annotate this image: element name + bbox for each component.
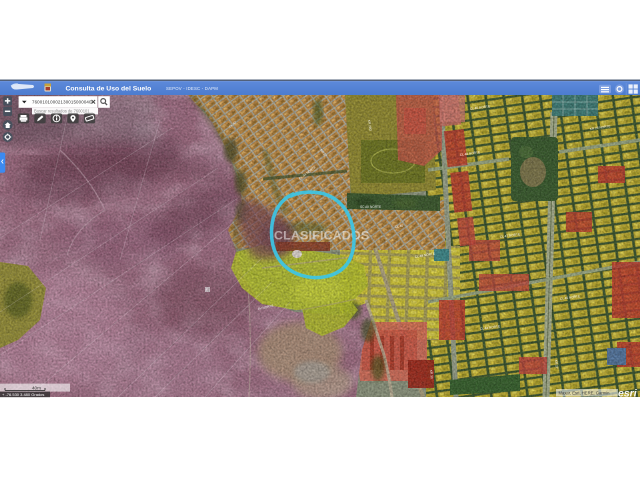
svg-text:SEPOV - IDESC - DAPM: SEPOV - IDESC - DAPM	[166, 86, 218, 91]
svg-text:76001010002130015000040: 76001010002130015000040	[32, 99, 92, 104]
svg-text:Maxar, Esri, HERE, Garmin: Maxar, Esri, HERE, Garmin	[559, 391, 611, 396]
svg-text:Buscar resultados de 7600101..: Buscar resultados de 7600101...	[34, 108, 93, 113]
svg-text:SC AV NORTE: SC AV NORTE	[360, 205, 381, 209]
svg-text:+ -76.530 3.480 Grados: + -76.530 3.480 Grados	[2, 392, 44, 397]
svg-text:Consulta de Uso del Suelo: Consulta de Uso del Suelo	[66, 86, 152, 93]
svg-text:esri: esri	[618, 388, 638, 400]
svg-text:40m: 40m	[32, 385, 41, 390]
